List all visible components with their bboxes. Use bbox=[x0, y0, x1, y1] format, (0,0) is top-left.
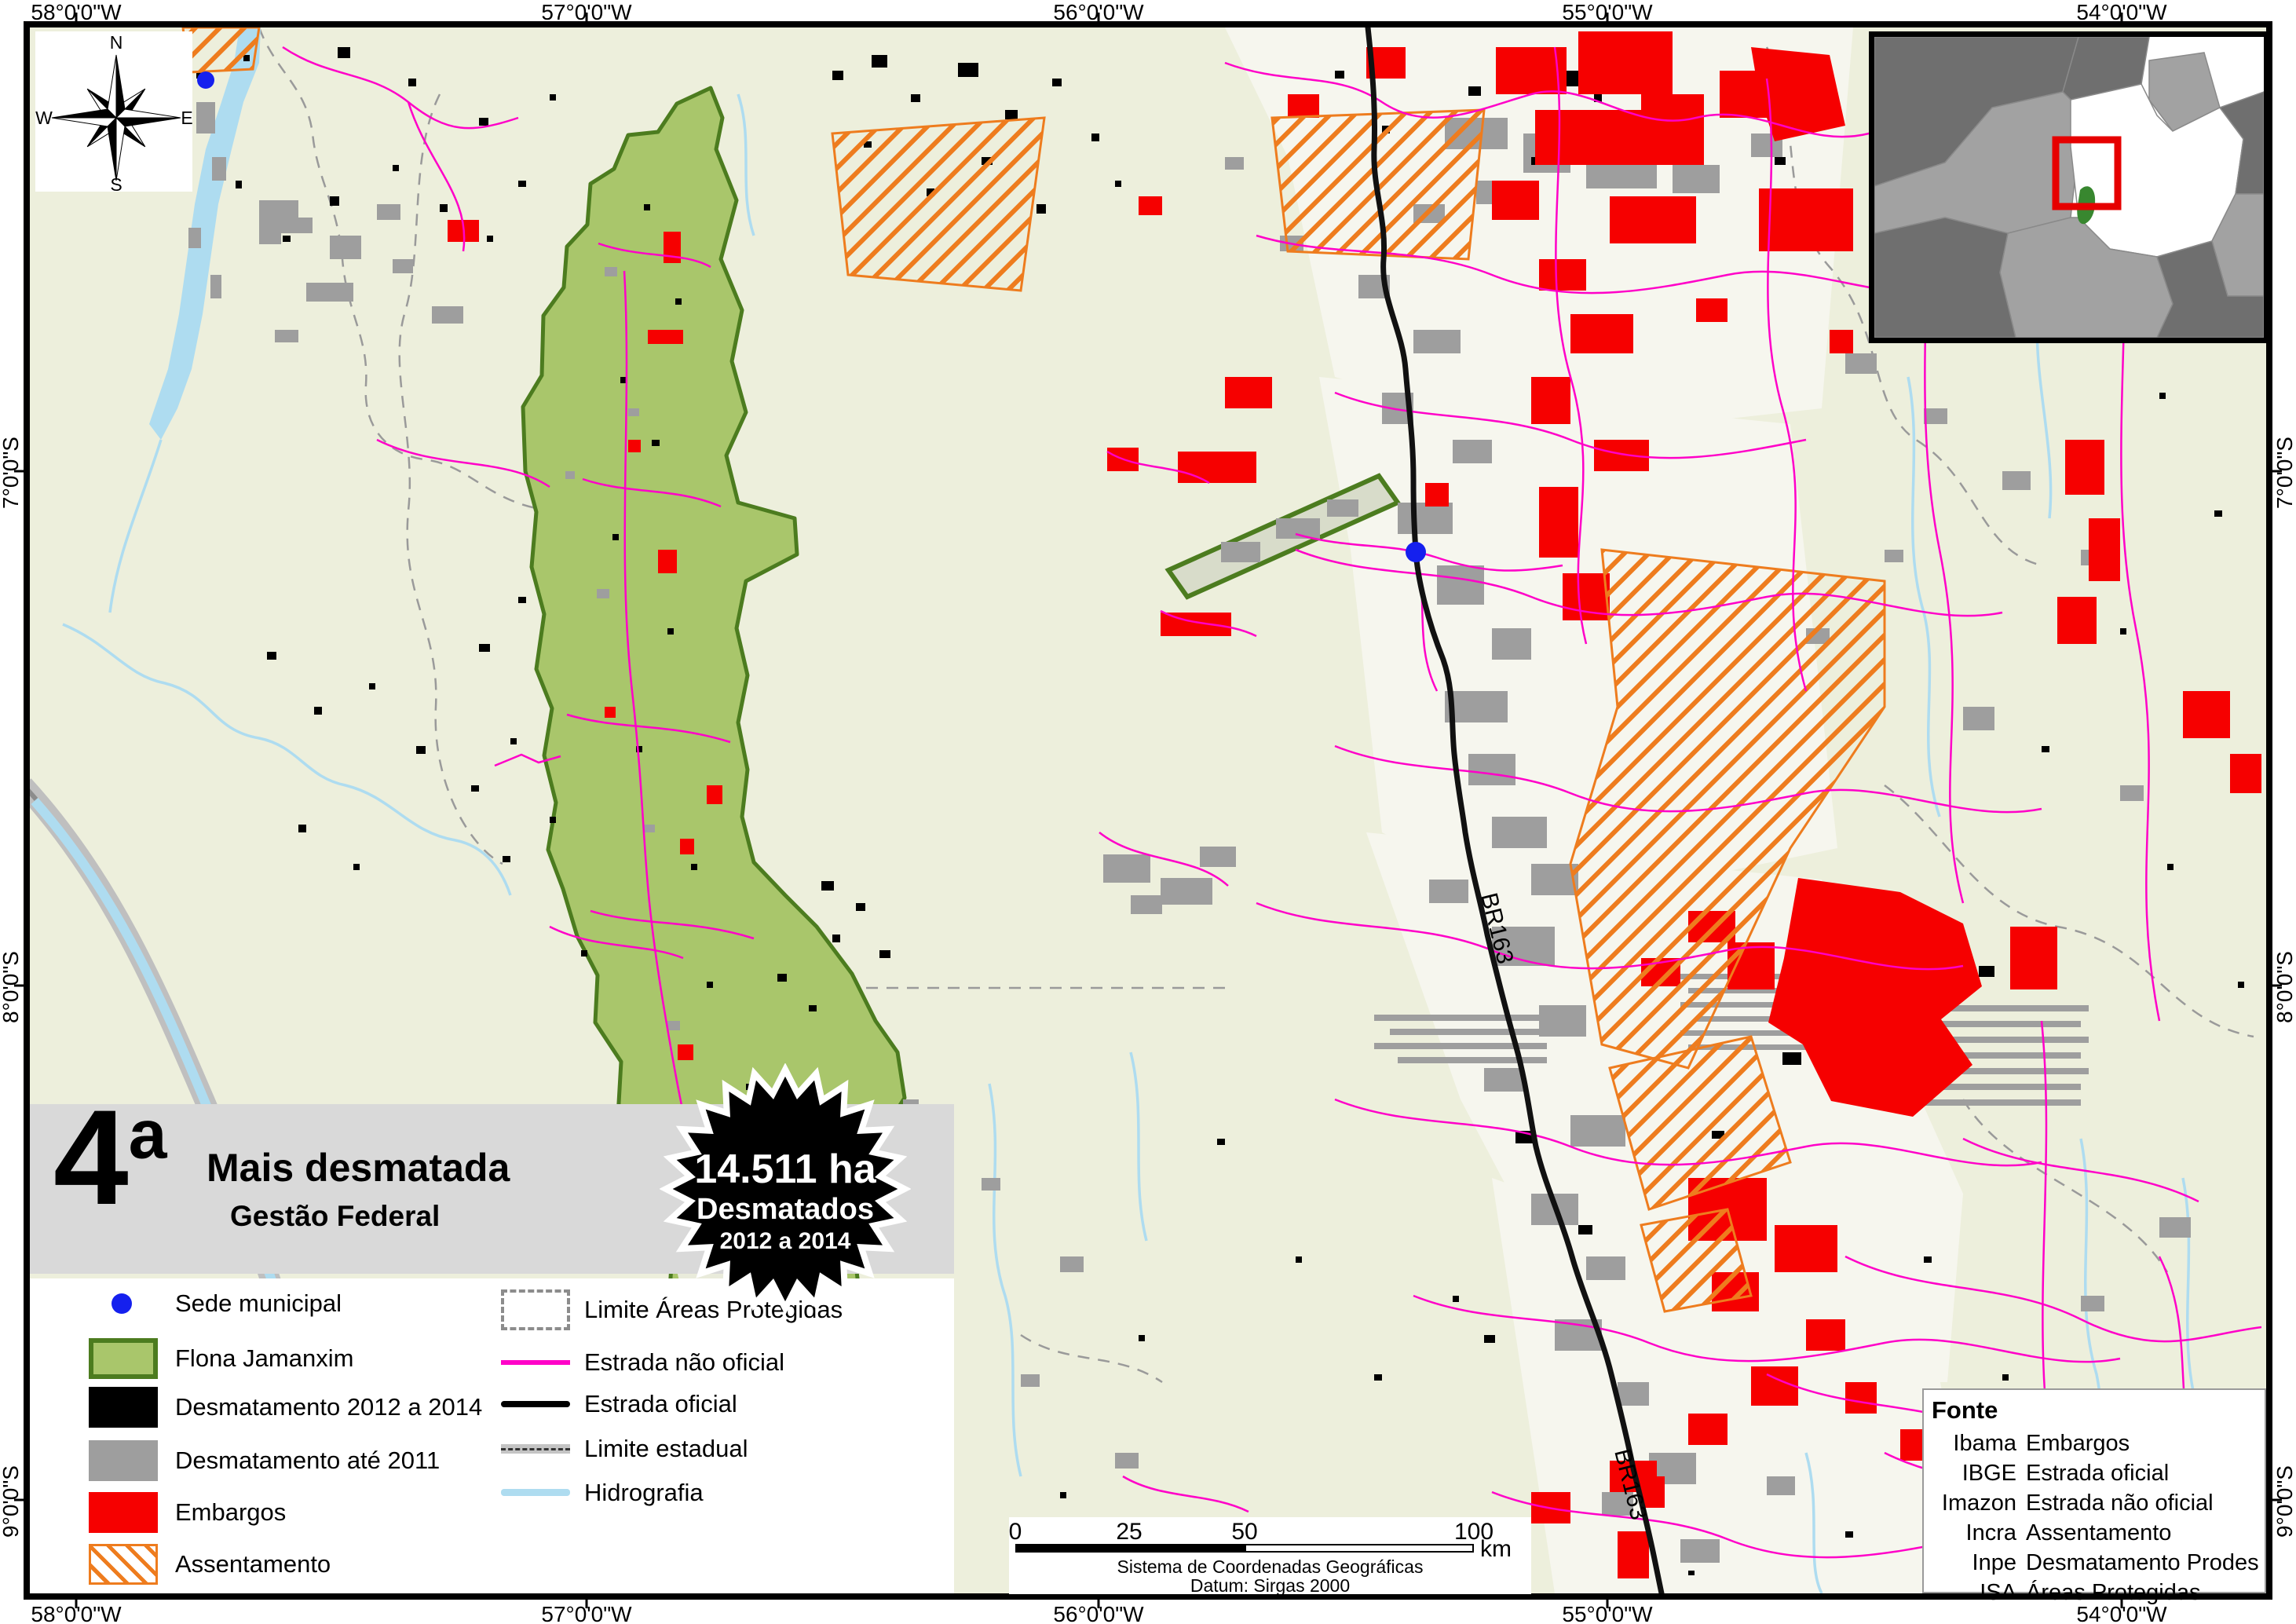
axis-label-top-4: 54°0'0"W bbox=[2051, 0, 2192, 25]
axis-label-right-2: 9°0'0"S bbox=[2272, 1431, 2296, 1572]
badge-value: 14.511 ha bbox=[694, 1147, 876, 1192]
legend-item-assentamento: Assentamento bbox=[89, 1544, 481, 1585]
axis-label-left-0: 7°0'0"S bbox=[0, 402, 24, 543]
axis-label-bottom-3: 55°0'0"W bbox=[1537, 1602, 1678, 1624]
rank-number: 4a bbox=[53, 1090, 167, 1225]
source-row: Imazon Estrada não oficial bbox=[1924, 1490, 2265, 1520]
legend-item-desmatamento-2012-2014: Desmatamento 2012 a 2014 bbox=[89, 1387, 481, 1428]
flona-swatch bbox=[89, 1338, 158, 1379]
unofficial-road-swatch bbox=[501, 1360, 570, 1365]
legend-label: Assentamento bbox=[175, 1550, 331, 1578]
axis-label-bottom-2: 56°0'0"W bbox=[1028, 1602, 1169, 1624]
sources-box: Fonte Ibama Embargos IBGE Estrada oficia… bbox=[1922, 1388, 2266, 1593]
badge-label: Desmatados bbox=[696, 1193, 874, 1226]
legend-item-estrada-oficial: Estrada oficial bbox=[501, 1384, 941, 1425]
scale-bar: 0 25 50 100 km Sistema de Coordenadas Ge… bbox=[1009, 1517, 1531, 1594]
scale-tick-0: 0 bbox=[1009, 1519, 1022, 1545]
legend-item-flona: Flona Jamanxim bbox=[89, 1338, 481, 1379]
compass-w: W bbox=[35, 108, 53, 128]
legend-label: Limite estadual bbox=[584, 1435, 748, 1463]
legend-label: Estrada não oficial bbox=[584, 1348, 784, 1377]
scale-tick-25: 25 bbox=[1116, 1519, 1142, 1545]
compass-rose: N E S W bbox=[35, 31, 192, 192]
axis-label-left-2: 9°0'0"S bbox=[0, 1431, 24, 1572]
legend-item-hidrografia: Hidrografia bbox=[501, 1472, 941, 1513]
deforestation-old-swatch bbox=[89, 1440, 158, 1481]
legend-label: Embargos bbox=[175, 1498, 286, 1527]
source-row: Inpe Desmatamento Prodes bbox=[1924, 1550, 2265, 1580]
assentamento-swatch bbox=[89, 1544, 158, 1585]
municipal-seat-swatch bbox=[112, 1293, 132, 1314]
scale-segment-white bbox=[1245, 1544, 1474, 1553]
official-road-swatch bbox=[501, 1401, 570, 1407]
source-agency: ISA bbox=[1924, 1580, 2016, 1606]
protected-areas-swatch bbox=[501, 1289, 570, 1330]
legend-label: Flona Jamanxim bbox=[175, 1344, 353, 1373]
source-agency: Incra bbox=[1924, 1520, 2016, 1546]
sources-header: Fonte bbox=[1932, 1396, 1998, 1425]
source-row: Incra Assentamento bbox=[1924, 1520, 2265, 1550]
source-dataset: Embargos bbox=[2026, 1431, 2130, 1457]
embargos-swatch bbox=[89, 1492, 158, 1533]
compass-e: E bbox=[181, 108, 192, 128]
scale-caption-1: Sistema de Coordenadas Geográficas bbox=[1009, 1556, 1531, 1578]
axis-label-top-1: 57°0'0"W bbox=[516, 0, 657, 25]
hydrography-swatch bbox=[501, 1489, 570, 1496]
compass-n: N bbox=[110, 32, 123, 53]
legend-label: Sede municipal bbox=[175, 1289, 342, 1318]
legend-label: Estrada oficial bbox=[584, 1390, 737, 1418]
legend-label: Hidrografia bbox=[584, 1479, 704, 1507]
compass-star bbox=[52, 55, 181, 181]
map-page: BR163 BR163 58°0'0"W 57°0'0"W 56°0'0"W 5… bbox=[0, 0, 2296, 1624]
axis-label-bottom-0: 58°0'0"W bbox=[5, 1602, 147, 1624]
legend-item-embargos: Embargos bbox=[89, 1492, 481, 1533]
axis-label-top-2: 56°0'0"W bbox=[1028, 0, 1169, 25]
source-dataset: Áreas Protegidas bbox=[2026, 1580, 2200, 1606]
title-text: Mais desmatada bbox=[207, 1145, 510, 1191]
deforested-badge: 14.511 ha Desmatados 2012 a 2014 bbox=[660, 1063, 911, 1315]
compass-s: S bbox=[110, 174, 122, 192]
axis-label-right-0: 7°0'0"S bbox=[2272, 402, 2296, 543]
legend: Sede municipal Flona Jamanxim Desmatamen… bbox=[30, 1278, 954, 1593]
source-agency: Ibama bbox=[1924, 1431, 2016, 1457]
inset-locator-map bbox=[1869, 31, 2269, 343]
source-agency: Inpe bbox=[1924, 1550, 2016, 1576]
legend-label: Desmatamento 2012 a 2014 bbox=[175, 1393, 482, 1421]
source-row: Ibama Embargos bbox=[1924, 1431, 2265, 1461]
axis-label-top-0: 58°0'0"W bbox=[5, 0, 147, 25]
state-limit-swatch-dash bbox=[501, 1448, 570, 1450]
legend-item-desmatamento-ate-2011: Desmatamento até 2011 bbox=[89, 1440, 481, 1481]
scale-tick-50: 50 bbox=[1231, 1519, 1257, 1545]
axis-label-bottom-1: 57°0'0"W bbox=[516, 1602, 657, 1624]
source-row: IBGE Estrada oficial bbox=[1924, 1461, 2265, 1490]
legend-item-estrada-nao-oficial: Estrada não oficial bbox=[501, 1342, 941, 1383]
source-dataset: Estrada não oficial bbox=[2026, 1490, 2214, 1516]
source-agency: Imazon bbox=[1924, 1490, 2016, 1516]
legend-item-limite-estadual: Limite estadual bbox=[501, 1428, 941, 1469]
legend-label: Desmatamento até 2011 bbox=[175, 1447, 440, 1475]
source-dataset: Desmatamento Prodes bbox=[2026, 1550, 2259, 1576]
badge-period: 2012 a 2014 bbox=[720, 1228, 851, 1254]
source-agency: IBGE bbox=[1924, 1461, 2016, 1487]
scale-segment-black bbox=[1015, 1544, 1245, 1553]
scale-caption-2: Datum: Sirgas 2000 bbox=[1009, 1575, 1531, 1597]
source-dataset: Estrada oficial bbox=[2026, 1461, 2169, 1487]
deforestation-recent-swatch bbox=[89, 1387, 158, 1428]
axis-label-right-1: 8°0'0"S bbox=[2272, 916, 2296, 1058]
source-row: ISA Áreas Protegidas bbox=[1924, 1580, 2265, 1610]
subtitle-text: Gestão Federal bbox=[230, 1200, 440, 1233]
source-dataset: Assentamento bbox=[2026, 1520, 2171, 1546]
axis-label-left-1: 8°0'0"S bbox=[0, 916, 24, 1058]
legend-item-sede-municipal: Sede municipal bbox=[89, 1283, 481, 1324]
axis-label-top-3: 55°0'0"W bbox=[1537, 0, 1678, 25]
